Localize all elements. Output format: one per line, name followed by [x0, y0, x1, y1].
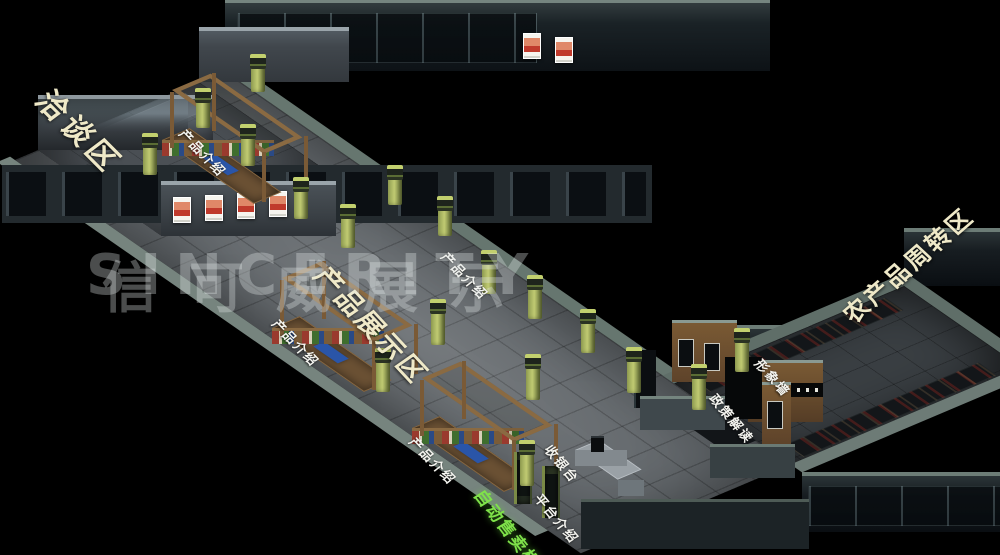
display-pillar [294, 177, 308, 219]
negotiation-room-far-wall [199, 27, 349, 82]
product-poster [555, 37, 573, 63]
exhibition-hall-render: 洽谈区 产品展示区 农产品周转区 产品介绍 产品介绍 产品介绍 产品介绍 收银台… [0, 0, 1000, 555]
info-screen [767, 401, 783, 429]
display-pillar [692, 364, 706, 410]
display-pillar [388, 165, 402, 205]
cash-register [591, 436, 604, 452]
display-pillar [520, 440, 534, 486]
wing-southeast-outer-wall [802, 472, 1000, 532]
display-pillar [526, 354, 540, 400]
wing-window-row [808, 486, 1000, 526]
shelf-frame-post [170, 92, 174, 148]
product-poster [173, 197, 191, 223]
info-screen [678, 339, 694, 367]
product-poster [205, 195, 223, 221]
display-pillar [196, 88, 210, 128]
display-pillar [735, 328, 749, 372]
product-poster [523, 33, 541, 59]
display-pillar [143, 133, 157, 175]
display-pillar [341, 204, 355, 248]
display-pillar [241, 124, 255, 166]
counter-side [618, 480, 644, 496]
watermark-cjk: 信可威展示 [102, 243, 537, 323]
shelf-frame-post [262, 152, 266, 202]
display-pillar [438, 196, 452, 236]
display-pillar [627, 347, 641, 393]
display-pillar [581, 309, 595, 353]
shelf-frame-post [212, 73, 216, 131]
counter-front [575, 450, 627, 466]
low-partition-wall [710, 444, 795, 478]
shelf-frame-post [462, 361, 466, 419]
shelf-frame-post [420, 380, 424, 436]
display-pillar [251, 54, 265, 92]
hall-end-wall [581, 499, 809, 549]
